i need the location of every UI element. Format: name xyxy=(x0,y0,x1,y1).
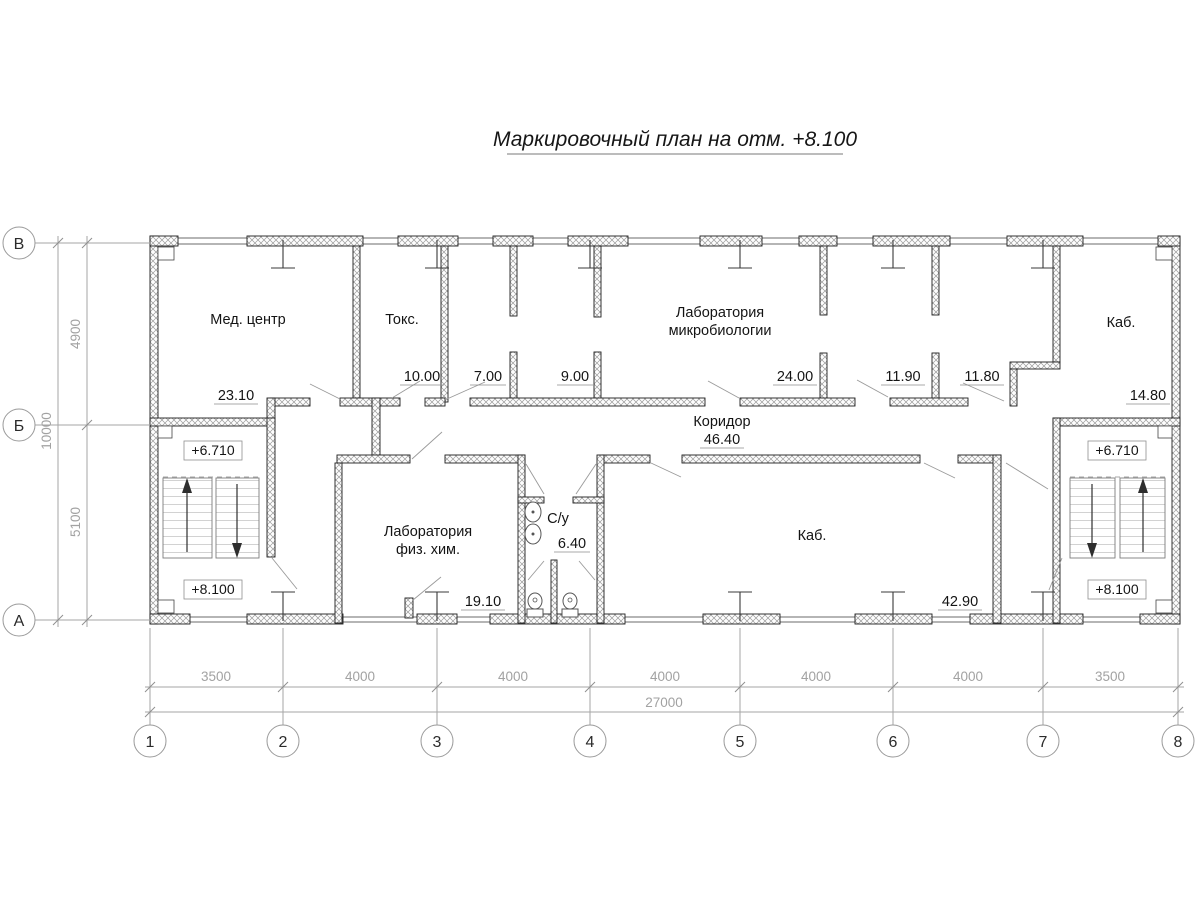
room-label-med-center: Мед. центр xyxy=(210,312,285,328)
room-area-lab-micro: 24.00 xyxy=(777,369,813,385)
dim-left-total: 10000 xyxy=(39,412,54,450)
axis-label-3: 3 xyxy=(433,734,442,751)
room-area-9: 9.00 xyxy=(561,369,589,385)
dim-bottom-2: 4000 xyxy=(345,669,375,684)
room-label-lab-micro-line2: микробиологии xyxy=(669,323,772,339)
room-area-lab-fizhim: 19.10 xyxy=(465,594,501,610)
elevation-upper-left: +6.710 xyxy=(191,442,234,458)
elevation-lower-left: +8.100 xyxy=(191,581,234,597)
toilet-icon xyxy=(527,593,543,617)
axis-label-4: 4 xyxy=(586,734,595,751)
elevation-upper-right: +6.710 xyxy=(1095,442,1138,458)
room-area-toks: 10.00 xyxy=(404,369,440,385)
dim-bottom-1: 3500 xyxy=(201,669,231,684)
dim-bottom-7: 3500 xyxy=(1095,669,1125,684)
dim-bottom-3: 4000 xyxy=(498,669,528,684)
room-label-lab-micro-line1: Лаборатория xyxy=(676,305,764,321)
room-area-kab-bottom: 42.90 xyxy=(942,594,978,610)
stairwell-left xyxy=(163,477,259,558)
axis-label-5: 5 xyxy=(736,734,745,751)
elevation-lower-right: +8.100 xyxy=(1095,581,1138,597)
dim-left-4900: 4900 xyxy=(68,319,83,349)
room-area-1180: 11.80 xyxy=(964,369,999,385)
dim-bottom-6: 4000 xyxy=(953,669,983,684)
floor-plan-drawing: Маркировочный план на отм. +8.100 xyxy=(0,0,1200,900)
dim-left-5100: 5100 xyxy=(68,507,83,537)
axis-label-v: В xyxy=(14,236,25,253)
room-label-lab-fizhim-line1: Лаборатория xyxy=(384,524,472,540)
room-area-1190: 11.90 xyxy=(885,369,920,385)
room-area-corridor: 46.40 xyxy=(704,432,740,448)
axis-label-a: А xyxy=(14,613,25,630)
toilet-icon xyxy=(562,593,578,617)
room-label-su: С/у xyxy=(547,511,570,527)
drawing-title: Маркировочный план на отм. +8.100 xyxy=(493,128,857,151)
room-area-med-center: 23.10 xyxy=(218,388,254,404)
drawing-title-block: Маркировочный план на отм. +8.100 xyxy=(493,128,857,154)
axis-label-7: 7 xyxy=(1039,734,1048,751)
room-area-kab-top: 14.80 xyxy=(1130,388,1166,404)
room-label-toks: Токс. xyxy=(385,312,419,328)
room-label-kab-top: Каб. xyxy=(1107,315,1136,331)
room-label-lab-fizhim-line2: физ. хим. xyxy=(396,542,460,558)
dim-bottom-total: 27000 xyxy=(645,695,683,710)
room-label-corridor: Коридор xyxy=(693,414,750,430)
room-label-kab-bottom: Каб. xyxy=(798,528,827,544)
room-area-7: 7.00 xyxy=(474,369,502,385)
room-area-su: 6.40 xyxy=(558,536,586,552)
dim-bottom-5: 4000 xyxy=(801,669,831,684)
axis-label-2: 2 xyxy=(279,734,288,751)
dim-bottom-4: 4000 xyxy=(650,669,680,684)
axis-label-1: 1 xyxy=(146,734,155,751)
axis-label-6: 6 xyxy=(889,734,898,751)
axis-label-8: 8 xyxy=(1174,734,1183,751)
axis-label-b: Б xyxy=(14,418,25,435)
